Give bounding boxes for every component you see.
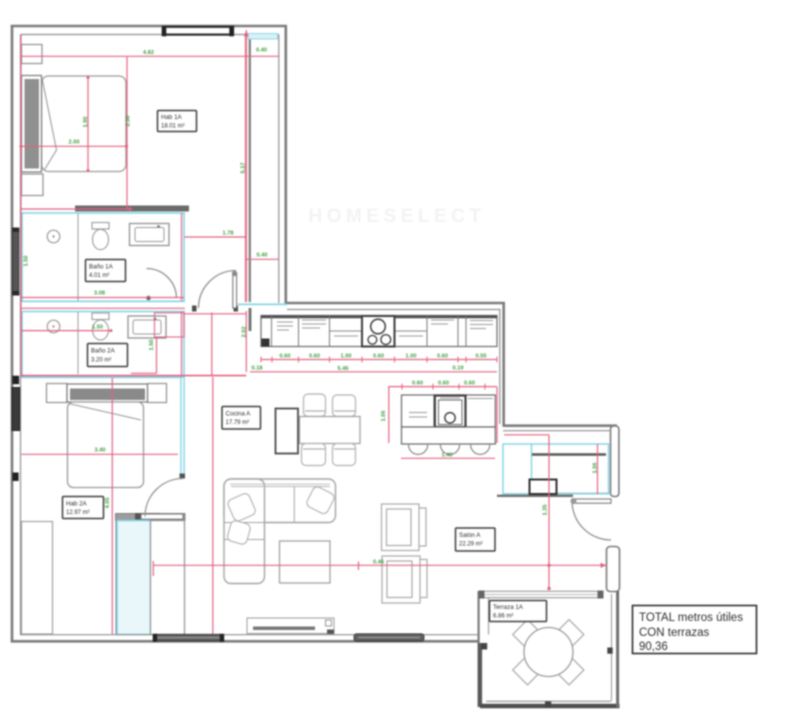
svg-text:Salón A: Salón A: [459, 532, 481, 539]
svg-text:1.50: 1.50: [149, 340, 155, 351]
svg-text:3.20 m²: 3.20 m²: [91, 358, 111, 364]
svg-text:0.60: 0.60: [280, 354, 291, 360]
svg-text:3.40: 3.40: [95, 448, 106, 454]
svg-text:0.40: 0.40: [256, 48, 267, 54]
svg-text:17.79 m²: 17.79 m²: [226, 420, 250, 426]
svg-text:0.60: 0.60: [437, 354, 448, 360]
svg-text:0.60: 0.60: [373, 354, 384, 360]
svg-text:1.50: 1.50: [92, 325, 103, 331]
svg-text:4.01 m²: 4.01 m²: [89, 273, 109, 279]
svg-text:3.08: 3.08: [94, 291, 105, 297]
svg-text:TOTAL metros útiles: TOTAL metros útiles: [639, 612, 743, 624]
svg-text:Hab 1A: Hab 1A: [161, 114, 183, 121]
svg-text:1.35: 1.35: [542, 505, 548, 516]
svg-text:0.60: 0.60: [464, 381, 475, 387]
svg-text:5.17: 5.17: [241, 163, 247, 174]
svg-text:0.18: 0.18: [252, 366, 263, 372]
svg-text:0.19: 0.19: [453, 366, 464, 372]
svg-text:1.00: 1.00: [341, 354, 352, 360]
svg-text:4.05: 4.05: [105, 498, 111, 509]
svg-text:1.06: 1.06: [593, 463, 599, 474]
svg-text:2.02: 2.02: [242, 327, 248, 338]
svg-text:0.55: 0.55: [476, 354, 487, 360]
svg-text:1.78: 1.78: [223, 231, 234, 237]
svg-text:6.86 m²: 6.86 m²: [493, 614, 513, 620]
svg-text:HOMESELECT: HOMESELECT: [309, 206, 486, 227]
svg-text:1.40: 1.40: [442, 452, 453, 458]
svg-text:90,36: 90,36: [639, 641, 668, 653]
svg-text:0.46: 0.46: [373, 560, 384, 566]
svg-text:0.60: 0.60: [309, 354, 320, 360]
svg-text:0.60: 0.60: [412, 381, 423, 387]
svg-text:1.90: 1.90: [83, 117, 89, 128]
svg-text:4.82: 4.82: [143, 50, 154, 56]
svg-text:18.01 m²: 18.01 m²: [161, 124, 185, 130]
svg-text:Baño 2A: Baño 2A: [91, 348, 116, 355]
svg-text:22.29 m²: 22.29 m²: [459, 542, 483, 548]
svg-text:1.00: 1.00: [406, 354, 417, 360]
svg-text:2.00: 2.00: [69, 140, 80, 146]
svg-text:Cocina A: Cocina A: [226, 411, 252, 418]
svg-text:1.50: 1.50: [24, 256, 30, 267]
svg-text:CON terrazas: CON terrazas: [639, 627, 710, 639]
svg-text:12.97 m²: 12.97 m²: [66, 510, 90, 516]
svg-text:5.46: 5.46: [338, 366, 349, 372]
svg-text:1.06: 1.06: [381, 411, 387, 422]
svg-text:Hab 2A: Hab 2A: [66, 501, 88, 508]
svg-text:Terraza 1A: Terraza 1A: [493, 604, 524, 611]
svg-text:0.60: 0.60: [438, 381, 449, 387]
svg-text:Baño 1A: Baño 1A: [89, 264, 114, 271]
svg-text:2.30: 2.30: [126, 116, 132, 127]
svg-text:0.40: 0.40: [257, 253, 268, 259]
